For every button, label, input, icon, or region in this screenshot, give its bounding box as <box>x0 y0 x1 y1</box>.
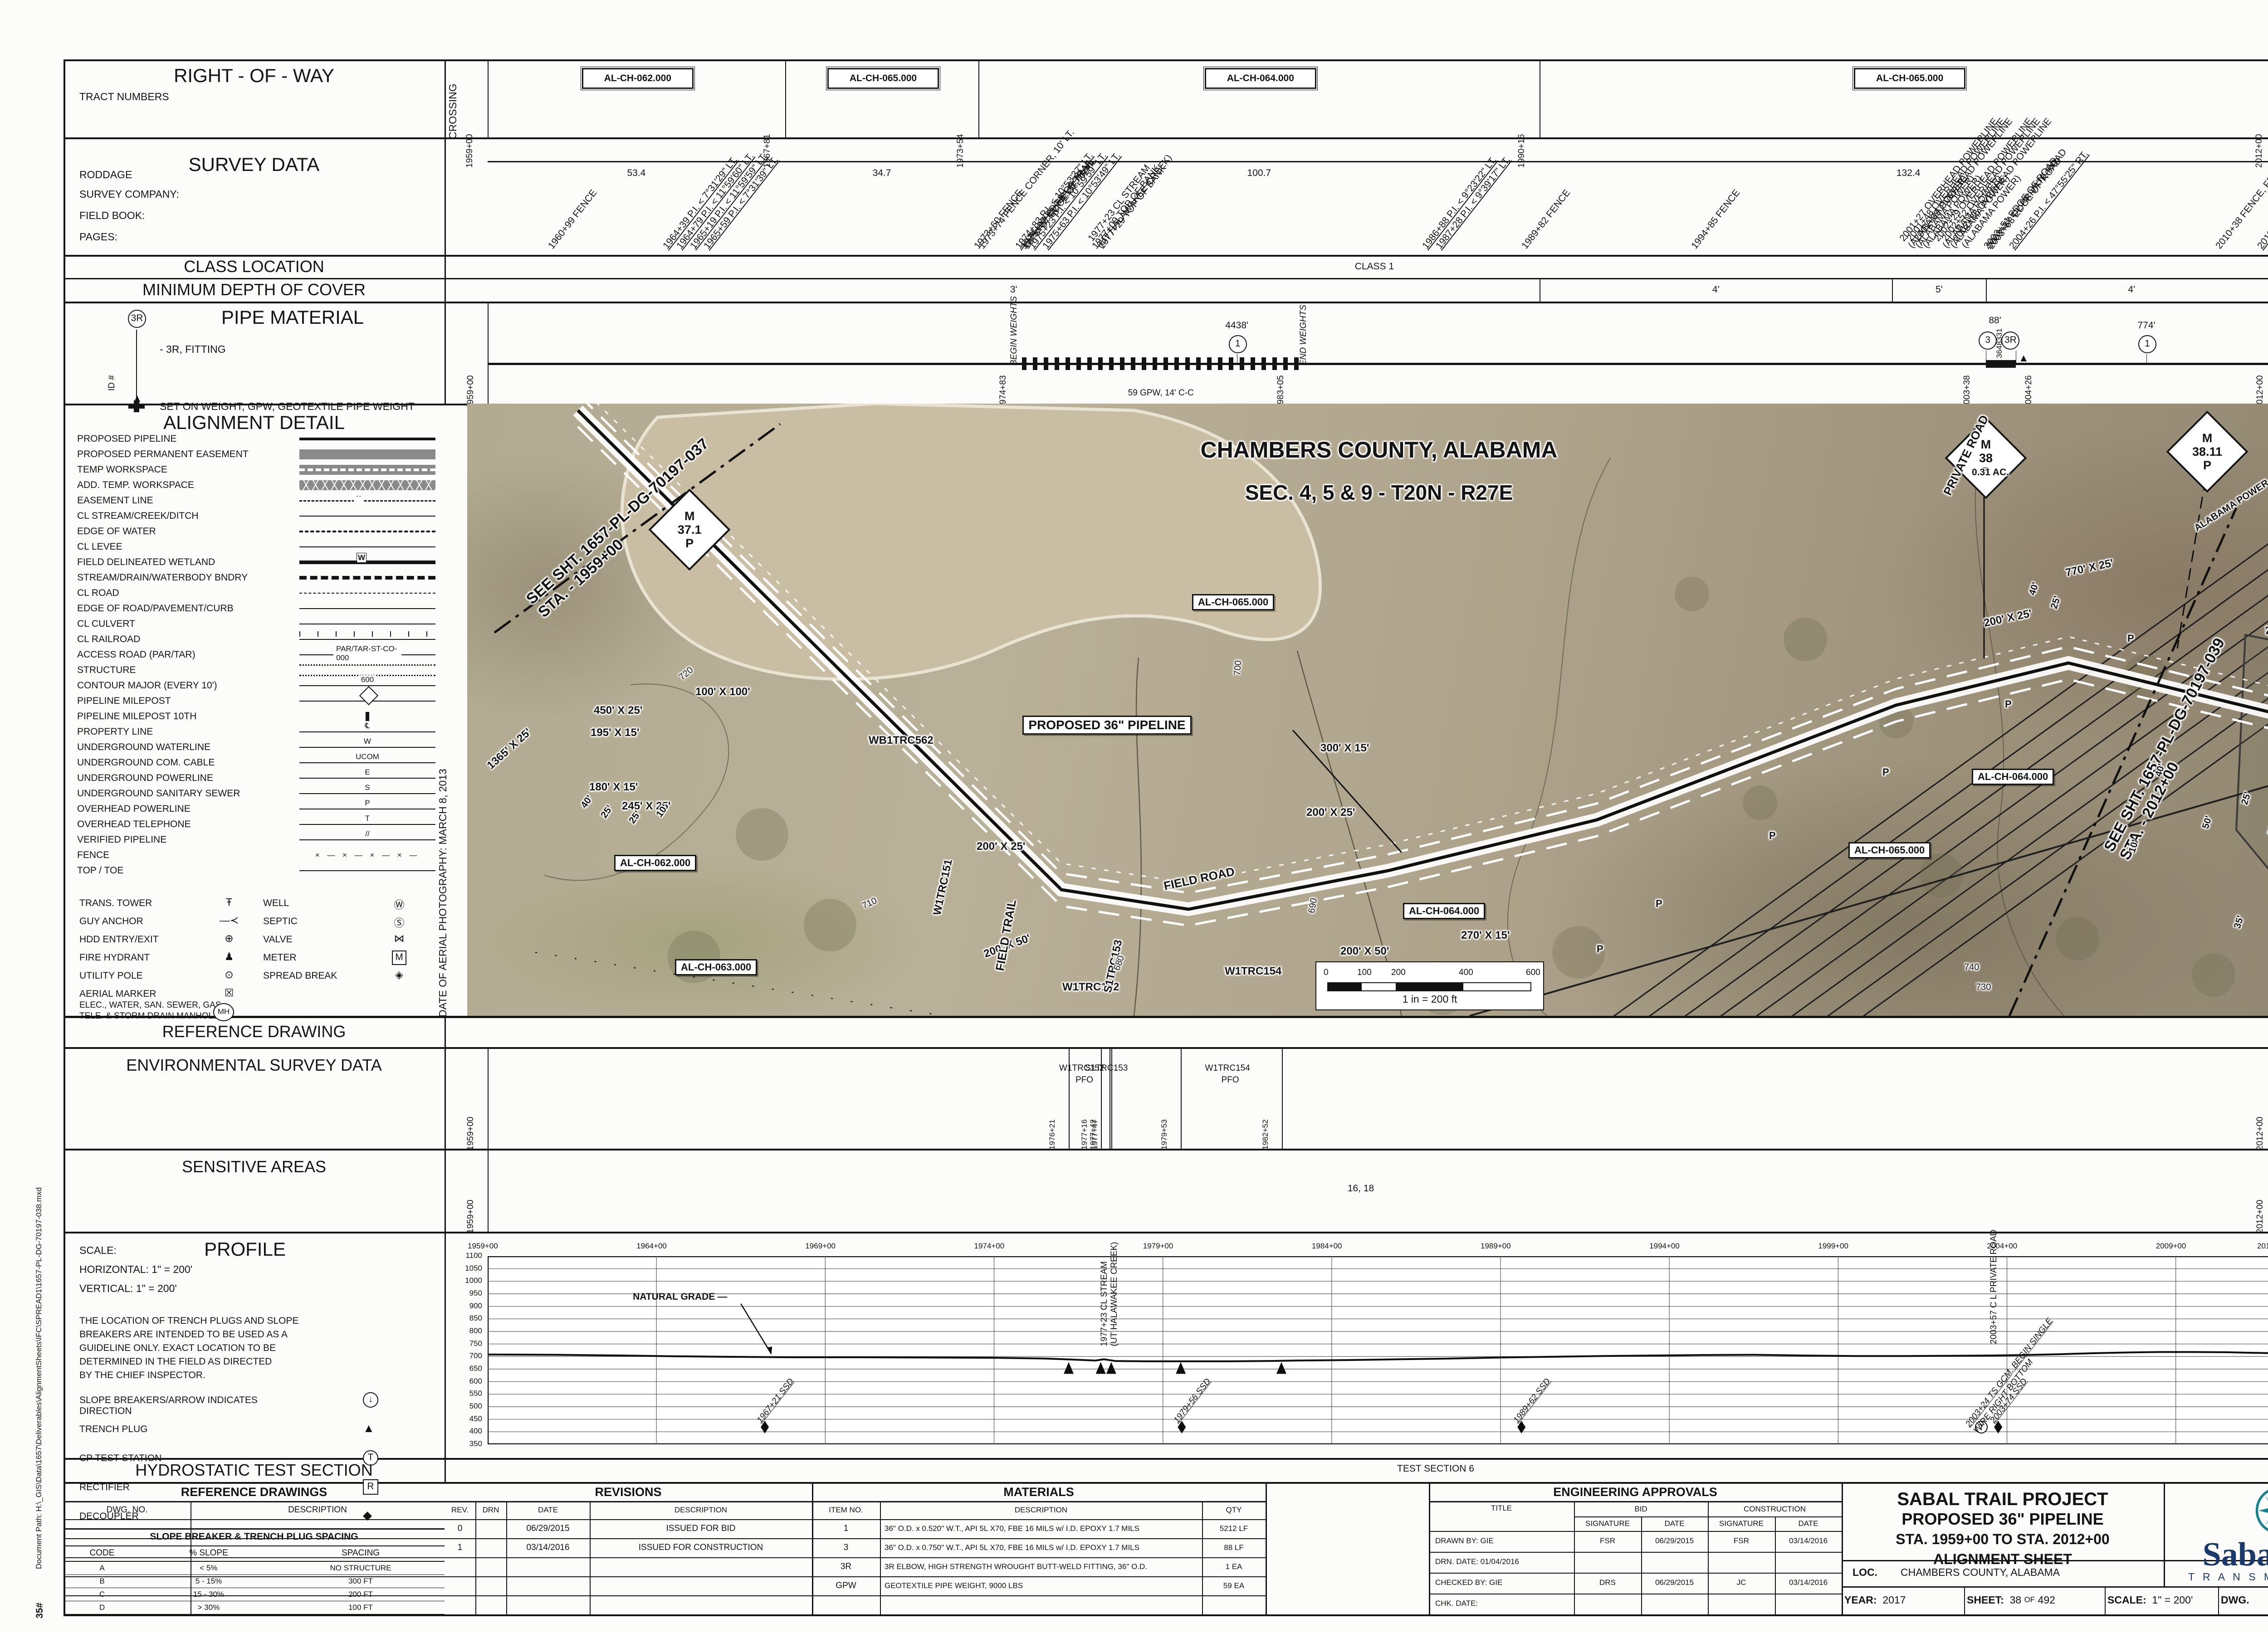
pipe-legend-id-label: ID # <box>107 375 117 391</box>
legend-item-label: TEMP WORKSPACE <box>77 464 290 475</box>
well-icon: Ⓦ <box>386 896 413 912</box>
rd-rowline <box>64 1576 445 1577</box>
legend-item-symbol-icon <box>299 479 435 491</box>
legend-item-symbol-icon <box>299 526 435 537</box>
legend-item-label: PIPELINE MILEPOST <box>77 696 290 707</box>
spread-break-icon: ◈ <box>386 969 413 981</box>
workspace-dimension-label: 200' X 25' <box>977 840 1026 853</box>
legend-item-label: STREAM/DRAIN/WATERBODY BNDRY <box>77 572 290 583</box>
tract-label-box: AL-CH-065.000 <box>1192 594 1274 610</box>
legend-item: FIELD DELINEATED WETLAND W <box>77 555 435 570</box>
rd-header: DWG. NO. <box>64 1502 191 1518</box>
legend-symbol-label: TRANS. TOWER <box>79 898 152 909</box>
frame-hline <box>64 137 2268 139</box>
legend-item-symbol-icon <box>299 634 435 645</box>
legend-item: VERIFIED PIPELINE // <box>77 833 435 847</box>
min-depth-divider <box>1986 278 1987 302</box>
legend-item-symbol-icon: W <box>299 556 435 568</box>
legend-item: TEMP WORKSPACE <box>77 463 435 477</box>
legend-item: OVERHEAD TELEPHONE T <box>77 817 435 832</box>
pipe-edge-line <box>488 302 489 404</box>
guy-anchor-icon: —≺ <box>215 914 243 926</box>
scale-caption: 1 in = 200 ft <box>1316 993 1543 1005</box>
tract-number-box: AL-CH-064.000 <box>1205 68 1316 89</box>
legend-item-label: STRUCTURE <box>77 665 290 676</box>
approval-sig <box>1708 1552 1775 1572</box>
utility-pole-icon: ⊙ <box>215 969 243 981</box>
material-desc: GEOTEXTILE PIPE WEIGHT, 9000 LBS <box>885 1577 1198 1594</box>
begin-weights-label: BEGIN WEIGHTS <box>1009 296 1019 366</box>
profile-station-tick: 2009+00 <box>2156 1242 2186 1251</box>
legend-item: OVERHEAD POWERLINE P <box>77 802 435 816</box>
sensitive-edge-line <box>488 1149 489 1232</box>
aerial-marker-icon: ☒ <box>215 987 243 999</box>
fire-hydrant-icon: ♟ <box>215 951 243 963</box>
strip-scale: SCALE: 1" = 200' <box>2107 1588 2215 1612</box>
env-feature-line <box>1110 1047 1110 1149</box>
pipe-legend-3r-icon: 3R <box>128 310 146 328</box>
spacing-cell: > 30% <box>141 1601 277 1614</box>
span2-leader <box>2146 354 2147 363</box>
strip-dwg: DWG. 1657-PL-DG-70197-038 <box>2221 1588 2268 1612</box>
approval-date: 03/14/2016 <box>1775 1531 1842 1551</box>
approval-date: 06/29/2015 <box>1641 1573 1708 1593</box>
profile-station-tick: 1999+00 <box>1818 1242 1848 1251</box>
project-title-line: SABAL TRAIL PROJECT <box>1842 1489 2164 1509</box>
spacing-cell: 200 FT <box>277 1588 445 1601</box>
reference-drawings-title: REFERENCE DRAWINGS <box>64 1484 445 1500</box>
row-title-hydrostatic: HYDROSTATIC TEST SECTION <box>64 1460 445 1480</box>
approval-date <box>1641 1552 1708 1572</box>
env-edge-station: 1959+00 <box>466 1117 476 1151</box>
legend-item-symbol-icon <box>299 572 435 584</box>
profile-elev-left: 400 <box>454 1427 482 1436</box>
project-title-line: PROPOSED 36" PIPELINE <box>1842 1509 2164 1529</box>
min-depth-value: 4' <box>2104 280 2159 300</box>
material-desc: 36" O.D. x 0.520" W.T., API 5L X70, FBE … <box>885 1520 1198 1537</box>
approval-sig <box>1574 1594 1641 1614</box>
legend-item: CONTOUR MAJOR (EVERY 10') 600 <box>77 678 435 693</box>
profile-elev-left: 750 <box>454 1339 482 1348</box>
workspace-dimension-label: 450' X 25' <box>594 704 643 717</box>
tract-number-box: AL-CH-065.000 <box>827 68 939 89</box>
revisions-header: DESCRIPTION <box>590 1502 812 1518</box>
document-path: Document Path: H:\_GIS\Data\1657\Deliver… <box>34 1187 44 1569</box>
crossing-label: CROSSING <box>447 83 459 139</box>
survey-annotation: 1989+82 FENCE <box>1520 188 1573 251</box>
legend-item-symbol-icon: × — × — × — × — <box>299 849 435 861</box>
legend-item: FENCE × — × — × — × — <box>77 848 435 863</box>
map-subtitle: SEC. 4, 5 & 9 - T20N - R27E <box>1193 480 1565 505</box>
spacing-cell: < 5% <box>141 1562 277 1575</box>
legend-item: TOP / TOE <box>77 863 435 878</box>
profile-elev-left: 550 <box>454 1389 482 1398</box>
legend-item-symbol-icon <box>299 464 435 476</box>
workspace-dimension-label: 180' X 15' <box>589 781 638 794</box>
rd-rowline <box>64 1519 445 1520</box>
rd-rowline <box>64 1557 445 1558</box>
row-title-profile: PROFILE <box>150 1238 340 1261</box>
env-feature-station: 1977+47 <box>1090 1119 1100 1150</box>
row-title-survey-data: SURVEY DATA <box>64 152 445 177</box>
legend-item-label: ACCESS ROAD (PAR/TAR) <box>77 649 290 660</box>
revision-rev: 0 <box>445 1520 475 1537</box>
material-item-no: 3 <box>812 1539 880 1556</box>
approvals-header: SIGNATURE <box>1574 1516 1641 1531</box>
legend-item-label: EDGE OF WATER <box>77 526 290 537</box>
row-station-line <box>1540 59 1540 137</box>
material-qty: 59 EA <box>1202 1577 1266 1594</box>
bend-item3-icon: 3 <box>1979 331 1997 350</box>
rd-header: DESCRIPTION <box>191 1502 445 1518</box>
env-edge-station: 2012+00 <box>2255 1117 2265 1151</box>
row-title-pipe-material: PIPE MATERIAL <box>141 306 445 329</box>
legend-item-label: UNDERGROUND WATERLINE <box>77 742 290 753</box>
legend-item-symbol-icon: S <box>299 788 435 799</box>
revision-rev: 1 <box>445 1539 475 1556</box>
profile-elev-left: 1100 <box>454 1251 482 1260</box>
profile-elev-left: 500 <box>454 1402 482 1411</box>
profile-legend-label: SLOPE BREAKERS/ARROW INDICATES DIRECTION <box>79 1395 333 1417</box>
legend-item-label: UNDERGROUND POWERLINE <box>77 773 290 784</box>
env-feature-class: PFO <box>1075 1075 1093 1085</box>
bend-fitting-id: 3648331 <box>1995 328 2004 358</box>
legend-item: PROPOSED PIPELINE <box>77 432 435 446</box>
strip-year: YEAR: 2017 <box>1844 1588 1961 1612</box>
approval-date <box>1641 1594 1708 1614</box>
profile-elev-left: 1050 <box>454 1264 482 1273</box>
legend-item-symbol-icon: ℄ <box>299 726 435 738</box>
legend-item: EDGE OF WATER <box>77 524 435 539</box>
approval-sig: JC <box>1708 1573 1775 1593</box>
legend-symbol-label: AERIAL MARKER <box>79 989 156 999</box>
legend-item-label: CL CULVERT <box>77 619 290 629</box>
row-station-line <box>978 59 979 137</box>
revision-date: 03/14/2016 <box>506 1539 590 1556</box>
profile-stream-label: 1977+23 CL STREAM(UT HALAWAKEE CREEK) <box>1100 1346 1204 1366</box>
profile-elev-left: 650 <box>454 1364 482 1373</box>
scale-tick: 0 <box>1324 968 1329 978</box>
legend-symbol-label: WELL <box>263 898 289 909</box>
profile-elev-left: 900 <box>454 1302 482 1311</box>
roddage-value: 132.4 <box>1881 164 1936 182</box>
roddage-value: 100.7 <box>1232 164 1286 182</box>
legend-item-label: VERIFIED PIPELINE <box>77 834 290 845</box>
env-feature-station: 1982+52 <box>1261 1119 1270 1150</box>
legend-item: CL STREAM/CREEK/DITCH <box>77 509 435 523</box>
legend-item: ACCESS ROAD (PAR/TAR) PAR/TAR-ST-CO-000 <box>77 648 435 662</box>
class-location-value: CLASS 1 <box>1315 257 1433 276</box>
map-title: CHAMBERS COUNTY, ALABAMA <box>1193 436 1565 463</box>
rev-rowline <box>445 1557 812 1558</box>
frame-vline <box>445 59 446 404</box>
legend-item-label: CL STREAM/CREEK/DITCH <box>77 511 290 522</box>
span1-length: 4438' <box>1210 319 1264 332</box>
row-station-label: 1973+54 <box>956 134 966 168</box>
legend-item-symbol-icon <box>299 448 435 460</box>
legend-item-label: CL LEVEE <box>77 541 290 552</box>
field-book-label: FIELD BOOK: <box>79 210 145 222</box>
material-qty: 5212 LF <box>1202 1520 1266 1537</box>
frame-vline <box>445 1016 446 1482</box>
profile-station-tick: 1969+00 <box>805 1242 836 1251</box>
sensitive-edge-station: 1959+00 <box>466 1200 476 1234</box>
min-depth-value: 5' <box>1912 280 1966 300</box>
profile-elev-left: 600 <box>454 1377 482 1386</box>
approvals-header: DATE <box>1775 1516 1842 1531</box>
legend-item-symbol-icon <box>299 618 435 630</box>
survey-annotation: 1960+99 FENCE <box>546 188 599 251</box>
meter-icon: M <box>386 951 413 965</box>
loc-label: LOC. <box>1853 1566 1877 1579</box>
workspace-dimension-label: 270' X 15' <box>1461 929 1510 942</box>
approval-sig: FSR <box>1574 1531 1641 1551</box>
workspace-dimension-label: 300' X 15' <box>1320 742 1369 755</box>
profile-elev-left: 1000 <box>454 1276 482 1285</box>
valve-icon: ⋈ <box>386 932 413 945</box>
approvals-group-bid: BID <box>1574 1502 1708 1516</box>
profile-station-tick: 1984+00 <box>1312 1242 1342 1251</box>
profile-scale-vertical: VERTICAL: 1" = 200' <box>79 1282 177 1295</box>
sabal-trail-brand: Sabal Trail <box>2164 1536 2268 1574</box>
legend-item: STREAM/DRAIN/WATERBODY BNDRY <box>77 570 435 585</box>
revision-desc: ISSUED FOR CONSTRUCTION <box>590 1539 812 1556</box>
revision-drn <box>475 1520 506 1537</box>
tract-label-box: AL-CH-063.000 <box>675 959 757 975</box>
legend-item-label: TOP / TOE <box>77 865 290 876</box>
frame-hline <box>64 1016 2268 1018</box>
sabal-trail-logo: Sabal Trail T R A N S M I S S I O NSM <box>2164 1482 2268 1586</box>
profile-station-tick: 1974+00 <box>974 1242 1005 1251</box>
approvals-header: SIGNATURE <box>1708 1516 1775 1531</box>
legend-item-symbol-icon: ·· <box>299 495 435 507</box>
strip-vline <box>2218 1586 2219 1614</box>
row-title-class-location: CLASS LOCATION <box>64 256 445 277</box>
spacing-cell: 15 - 30% <box>141 1588 277 1601</box>
survey-feature-label: WB1TRC562 <box>869 734 934 747</box>
legend-item-symbol-icon <box>299 541 435 553</box>
rd-rowline <box>64 1595 445 1596</box>
legend-title: ALIGNMENT DETAIL <box>64 410 445 435</box>
legend-item-label: ADD. TEMP. WORKSPACE <box>77 480 290 491</box>
frame-hline <box>64 1047 2268 1049</box>
profile-elev-left: 350 <box>454 1439 482 1448</box>
legend-symbol-label: VALVE <box>263 934 293 945</box>
manholes-label: ELEC., WATER, SAN. SEWER, GAS <box>79 1000 221 1010</box>
tract-number-box: AL-CH-062.000 <box>582 68 694 89</box>
spacing-table-title: SLOPE BREAKER & TRENCH PLUG SPACING <box>64 1529 445 1545</box>
row-title-min-depth: MINIMUM DEPTH OF COVER <box>64 279 445 301</box>
gpw-note: 59 GPW, 14' C-C <box>1124 386 1197 400</box>
approval-date: 06/29/2015 <box>1641 1531 1708 1551</box>
sensitive-areas-value: 16, 18 <box>1315 1180 1406 1197</box>
profile-note-line: DETERMINED IN THE FIELD AS DIRECTED <box>79 1356 272 1367</box>
pipe-legend-line <box>136 330 137 398</box>
env-feature-station: 1977+16 <box>1080 1119 1089 1150</box>
legend-item-symbol-icon: // <box>299 834 435 846</box>
natural-grade-label: NATURAL GRADE — <box>633 1292 727 1302</box>
material-item-no: 1 <box>812 1520 880 1537</box>
row-title-right-of-way: RIGHT - OF - WAY <box>64 63 445 88</box>
powerline-p-marker: P <box>2005 698 2012 710</box>
survey-annotation: 1994+85 FENCE <box>1690 188 1743 251</box>
approval-sig <box>1574 1552 1641 1572</box>
profile-note-line: GUIDELINE ONLY. EXACT LOCATION TO BE <box>79 1343 276 1354</box>
profile-legend-plug-icon: ▲ <box>363 1421 375 1435</box>
approval-date: 03/14/2016 <box>1775 1573 1842 1593</box>
profile-elev-left: 450 <box>454 1414 482 1423</box>
legend-item-symbol-icon <box>299 603 435 614</box>
approval-title: CHECKED BY: GIE <box>1435 1573 1571 1593</box>
legend-item-symbol-icon: E <box>299 772 435 784</box>
tract-label-box: AL-CH-064.000 <box>1403 903 1485 919</box>
legend-item: CL ROAD <box>77 586 435 600</box>
profile-station-tick: 1979+00 <box>1143 1242 1173 1251</box>
legend-item-label: PIPELINE MILEPOST 10TH <box>77 711 290 722</box>
project-title-line: STA. 1959+00 TO STA. 2012+00 <box>1842 1529 2164 1549</box>
spacing-cell: C <box>64 1588 141 1601</box>
rev-rowline <box>445 1576 812 1577</box>
row-station-label: 1990+16 <box>1517 134 1527 168</box>
legend-item: PROPERTY LINE ℄ <box>77 725 435 739</box>
legend-item: ADD. TEMP. WORKSPACE <box>77 478 435 492</box>
approval-sig <box>1708 1594 1775 1614</box>
legend-symbol-label: METER <box>263 952 297 963</box>
legend-item-label: CONTOUR MAJOR (EVERY 10') <box>77 680 290 691</box>
legend-item: PIPELINE MILEPOST 10TH <box>77 709 435 724</box>
materials-title: MATERIALS <box>812 1484 1266 1500</box>
spacing-cell: D <box>64 1601 141 1614</box>
legend-item: CL LEVEE <box>77 540 435 554</box>
row-title-environmental: ENVIRONMENTAL SURVEY DATA <box>64 1053 445 1077</box>
powerline-p-marker: P <box>1769 830 1776 842</box>
frame-hline <box>64 59 2268 61</box>
env-feature-line <box>1069 1047 1070 1149</box>
tract-label-box: AL-CH-064.000 <box>1972 769 2054 785</box>
contour-label: 740 <box>1964 962 1979 973</box>
profile-station-tick: 1994+00 <box>1649 1242 1680 1251</box>
pipe-weights-hatch <box>1022 357 1300 370</box>
legend-item-label: PROPERTY LINE <box>77 726 290 737</box>
sabal-trail-sub: T R A N S M I S S I O NSM <box>2164 1571 2268 1583</box>
sabal-trail-logo-icon <box>2254 1486 2268 1536</box>
revisions-title: REVISIONS <box>445 1484 812 1500</box>
min-depth-value: 4' <box>1689 280 1743 300</box>
scale-tick: 600 <box>1526 968 1540 978</box>
profile-station-tick: 2012+00 <box>2257 1242 2268 1251</box>
legend-item: PIPELINE MILEPOST <box>77 694 435 708</box>
legend-item-label: PROPOSED PIPELINE <box>77 434 290 444</box>
revisions-header: DRN <box>475 1502 506 1518</box>
contour-label: 700 <box>1232 660 1244 676</box>
env-feature-class: PFO <box>1222 1075 1239 1085</box>
material-qty: 88 LF <box>1202 1539 1266 1556</box>
profile-scale-horizontal: HORIZONTAL: 1" = 200' <box>79 1263 192 1276</box>
legend-item-label: UNDERGROUND SANITARY SEWER <box>77 788 290 799</box>
approvals-header: DATE <box>1641 1516 1708 1531</box>
workspace-dimension-label: 200' X 50' <box>1340 945 1389 958</box>
env-feature-name: S1TRC153 <box>1085 1063 1128 1073</box>
legend-item-label: CL RAILROAD <box>77 634 290 645</box>
min-depth-divider <box>1892 278 1893 302</box>
profile-station-tick: 1964+00 <box>636 1242 667 1251</box>
legend-item-symbol-icon: UCOM <box>299 757 435 769</box>
legend-item: UNDERGROUND POWERLINE E <box>77 771 435 785</box>
material-qty: 1 EA <box>1202 1558 1266 1575</box>
bend-length: 88' <box>1989 315 2001 326</box>
legend-item-symbol-icon <box>299 711 435 722</box>
legend-item: STRUCTURE <box>77 663 435 678</box>
tract-numbers-label: TRACT NUMBERS <box>79 91 169 103</box>
materials-header: DESCRIPTION <box>880 1502 1202 1518</box>
revision-drn <box>475 1539 506 1556</box>
bend-leader-a <box>1986 351 1986 363</box>
span1-leader <box>1237 354 1237 363</box>
spacing-cell: 100 FT <box>277 1601 445 1614</box>
span1-item-icon: 1 <box>1229 335 1247 353</box>
tb-hline <box>1842 1586 2268 1588</box>
profile-legend-slope-icon: ↓ <box>363 1392 378 1408</box>
legend-item-symbol-icon: T <box>299 819 435 830</box>
hydro-test-section-value: TEST SECTION 6 <box>1397 1463 1474 1474</box>
powerline-p-marker: P <box>1882 766 1889 778</box>
tract-number-box: AL-CH-065.000 <box>1854 68 1965 89</box>
frame-hline <box>64 1614 2268 1616</box>
mat-rowline <box>812 1595 1266 1596</box>
tract-label-box: AL-CH-062.000 <box>614 855 696 871</box>
strip-vline <box>1964 1586 1965 1614</box>
profile-station-tick: 1989+00 <box>1481 1242 1511 1251</box>
env-feature-line <box>1282 1047 1283 1149</box>
profile-station-tick: 1959+00 <box>468 1242 498 1251</box>
legend-item-label: EDGE OF ROAD/PAVEMENT/CURB <box>77 603 290 614</box>
workspace-dimension-label: 100' X 100' <box>695 686 750 698</box>
legend-item: UNDERGROUND SANITARY SEWER S <box>77 786 435 801</box>
legend-symbol-label: SEPTIC <box>263 916 298 927</box>
approval-sig: FSR <box>1708 1531 1775 1551</box>
powerline-p-marker: P <box>2127 633 2134 644</box>
legend-item: EDGE OF ROAD/PAVEMENT/CURB <box>77 601 435 616</box>
approvals-group-construction: CONSTRUCTION <box>1708 1502 1842 1516</box>
transmission-tower-icon: Ŧ <box>215 896 243 908</box>
proposed-pipeline-label: PROPOSED 36" PIPELINE <box>1022 716 1191 735</box>
row-title-sensitive-areas: SENSITIVE AREAS <box>64 1155 445 1179</box>
spacing-cell: NO STRUCTURE <box>277 1562 445 1575</box>
legend-item: EASEMENT LINE ·· <box>77 493 435 508</box>
approvals-title: ENGINEERING APPROVALS <box>1429 1484 1842 1500</box>
end-weights-label: END WEIGHTS <box>1299 305 1309 366</box>
tract-label-box: AL-CH-065.000 <box>1848 842 1931 858</box>
sensitive-edge-station: 2012+00 <box>2255 1200 2265 1234</box>
legend-item-label: EASEMENT LINE <box>77 495 290 506</box>
survey-company-label: SURVEY COMPANY: <box>79 188 179 200</box>
approval-date <box>1775 1594 1842 1614</box>
strip-vline <box>2105 1586 2106 1614</box>
survey-annotation: 1986+88 P.I. < 9°23'22" LT. <box>1420 155 1499 251</box>
revision-date: 06/29/2015 <box>506 1520 590 1537</box>
sheet-number-tag: 35# <box>34 1603 45 1618</box>
revision-desc: ISSUED FOR BID <box>590 1520 812 1537</box>
row-station-label: 1959+00 <box>465 134 475 168</box>
legend-item-label: PROPOSED PERMANENT EASEMENT <box>77 449 290 460</box>
bend-heavy-bar <box>1986 360 2016 368</box>
bend-triangle-icon: ▲ <box>2019 352 2029 364</box>
legend-item-label: UNDERGROUND COM. CABLE <box>77 757 290 768</box>
powerline-p-marker: P <box>1597 943 1603 955</box>
profile-legend-label: TRENCH PLUG <box>79 1424 333 1435</box>
material-item-no: GPW <box>812 1577 880 1594</box>
row-station-line <box>785 59 786 137</box>
